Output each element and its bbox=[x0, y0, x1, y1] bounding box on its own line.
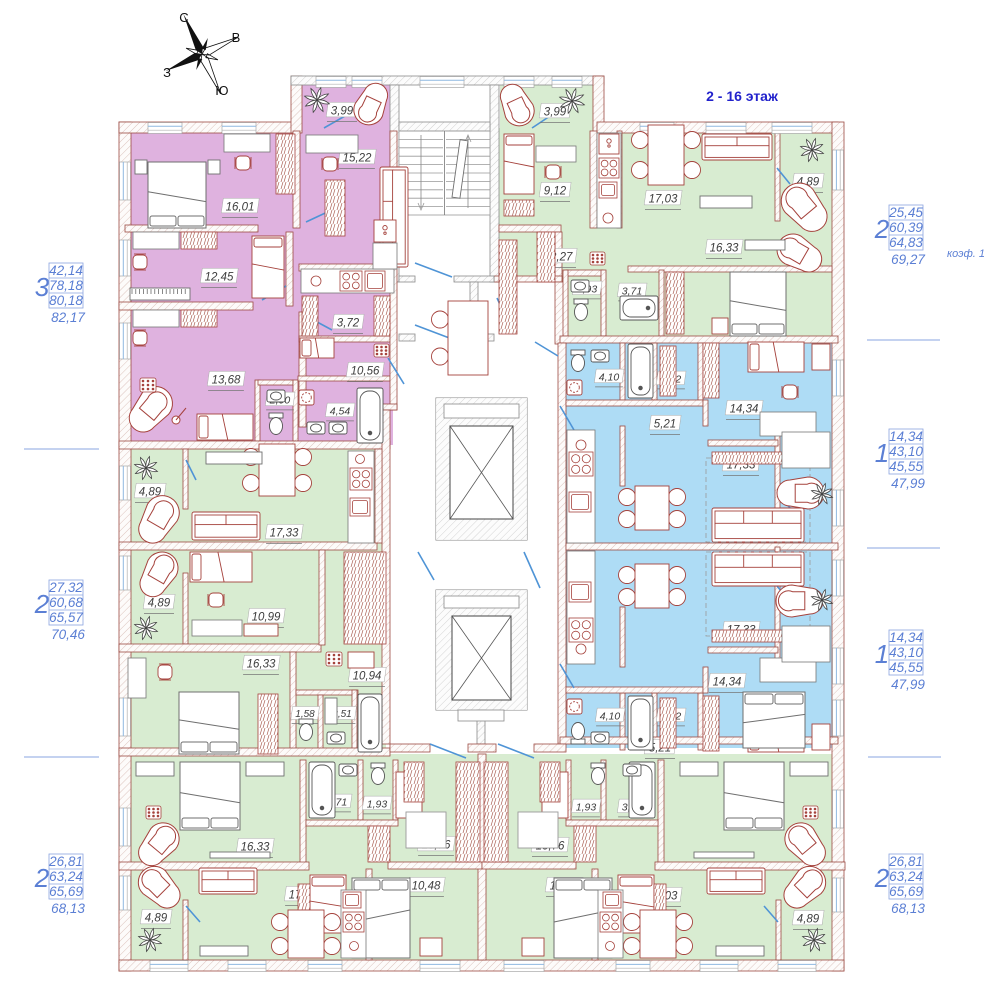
svg-text:13,68: 13,68 bbox=[212, 375, 241, 387]
svg-text:80,18: 80,18 bbox=[49, 293, 83, 308]
svg-text:5,21: 5,21 bbox=[654, 419, 676, 431]
svg-text:27,32: 27,32 bbox=[48, 580, 83, 595]
svg-text:10,56: 10,56 bbox=[351, 366, 380, 378]
svg-text:16,33: 16,33 bbox=[247, 659, 276, 671]
svg-text:З: З bbox=[163, 65, 171, 80]
svg-text:14,34: 14,34 bbox=[713, 677, 742, 689]
svg-text:65,69: 65,69 bbox=[49, 884, 83, 899]
svg-text:47,99: 47,99 bbox=[891, 476, 925, 491]
svg-text:2 - 16 этаж: 2 - 16 этаж bbox=[706, 88, 779, 104]
svg-text:1,93: 1,93 bbox=[576, 801, 597, 813]
svg-text:14,34: 14,34 bbox=[889, 630, 923, 645]
svg-text:С: С bbox=[179, 10, 188, 25]
svg-text:16,01: 16,01 bbox=[226, 202, 255, 214]
svg-text:17,03: 17,03 bbox=[649, 194, 678, 206]
svg-text:12,45: 12,45 bbox=[205, 272, 234, 284]
svg-text:78,18: 78,18 bbox=[49, 278, 83, 293]
svg-text:60,68: 60,68 bbox=[49, 595, 83, 610]
svg-text:43,10: 43,10 bbox=[889, 645, 923, 660]
svg-text:коэф. 1: коэф. 1 bbox=[947, 248, 985, 260]
svg-text:63,24: 63,24 bbox=[49, 869, 83, 884]
svg-text:4,10: 4,10 bbox=[599, 371, 620, 383]
svg-text:63,24: 63,24 bbox=[889, 869, 923, 884]
svg-text:26,81: 26,81 bbox=[48, 854, 83, 869]
svg-text:68,13: 68,13 bbox=[51, 901, 85, 916]
svg-text:2: 2 bbox=[34, 589, 50, 619]
svg-text:16,33: 16,33 bbox=[710, 243, 739, 255]
svg-text:4,54: 4,54 bbox=[330, 405, 351, 417]
svg-text:42,14: 42,14 bbox=[49, 263, 83, 278]
svg-text:1,58: 1,58 bbox=[295, 709, 315, 720]
svg-text:4,89: 4,89 bbox=[145, 913, 168, 925]
svg-text:2: 2 bbox=[874, 863, 890, 893]
svg-text:9,12: 9,12 bbox=[544, 186, 567, 198]
svg-text:4,89: 4,89 bbox=[797, 914, 820, 926]
svg-text:43,10: 43,10 bbox=[889, 444, 923, 459]
svg-text:60,39: 60,39 bbox=[889, 220, 923, 235]
svg-text:45,55: 45,55 bbox=[889, 660, 923, 675]
svg-text:Ю: Ю bbox=[215, 83, 228, 98]
svg-text:65,69: 65,69 bbox=[889, 884, 923, 899]
svg-text:70,46: 70,46 bbox=[51, 627, 85, 642]
svg-text:15,22: 15,22 bbox=[343, 153, 372, 165]
svg-text:10,48: 10,48 bbox=[412, 881, 441, 893]
svg-text:3,99: 3,99 bbox=[544, 107, 567, 119]
svg-text:4,10: 4,10 bbox=[600, 710, 621, 722]
svg-text:3,99: 3,99 bbox=[331, 106, 354, 118]
svg-text:1: 1 bbox=[875, 438, 889, 468]
svg-text:25,45: 25,45 bbox=[888, 205, 923, 220]
svg-text:3,72: 3,72 bbox=[337, 318, 360, 330]
svg-text:10,94: 10,94 bbox=[353, 671, 382, 683]
svg-text:68,13: 68,13 bbox=[891, 901, 925, 916]
svg-text:3: 3 bbox=[35, 272, 50, 302]
svg-text:В: В bbox=[232, 30, 241, 45]
svg-text:65,57: 65,57 bbox=[49, 610, 83, 625]
svg-text:69,27: 69,27 bbox=[891, 252, 925, 267]
svg-text:26,81: 26,81 bbox=[888, 854, 923, 869]
svg-text:2: 2 bbox=[874, 214, 890, 244]
svg-text:45,55: 45,55 bbox=[889, 459, 923, 474]
svg-text:82,17: 82,17 bbox=[51, 310, 85, 325]
svg-text:4,89: 4,89 bbox=[148, 598, 171, 610]
svg-text:14,34: 14,34 bbox=[889, 429, 923, 444]
svg-text:64,83: 64,83 bbox=[889, 235, 923, 250]
svg-text:10,99: 10,99 bbox=[252, 612, 281, 624]
svg-text:17,33: 17,33 bbox=[270, 528, 299, 540]
svg-text:1: 1 bbox=[875, 639, 889, 669]
svg-text:14,34: 14,34 bbox=[730, 404, 759, 416]
svg-text:1,93: 1,93 bbox=[367, 798, 388, 810]
svg-text:47,99: 47,99 bbox=[891, 677, 925, 692]
svg-text:2: 2 bbox=[34, 863, 50, 893]
